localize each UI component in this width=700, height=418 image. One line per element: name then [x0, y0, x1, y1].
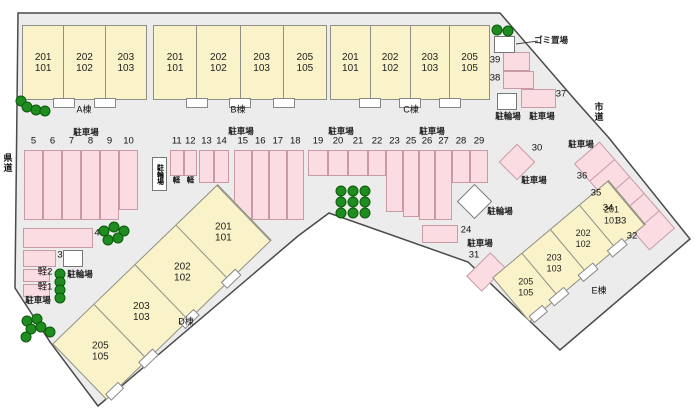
- unit-number: 205105: [461, 52, 478, 74]
- building-b: 201101202102203103205105: [153, 25, 327, 100]
- unit-number: 201101: [342, 52, 359, 74]
- unit-number: 205105: [518, 276, 533, 298]
- stall-number: 37: [556, 89, 567, 99]
- parking-stall: [328, 150, 348, 176]
- unit-number: 203103: [422, 52, 439, 74]
- parking-area-label: 駐車場: [73, 128, 99, 137]
- bicycle-parking-box: [497, 93, 517, 110]
- parking-stall: [100, 150, 119, 220]
- parking-area-label: 駐車場: [228, 127, 254, 136]
- parking-stall: [368, 150, 386, 176]
- stall-number: 軽1: [38, 282, 53, 292]
- tree-icon: [336, 208, 347, 219]
- road-label-shido: 市道: [594, 102, 603, 122]
- stall-number: 28: [456, 136, 467, 146]
- stall-number: 14: [216, 136, 227, 146]
- stall-number: 10: [123, 136, 134, 146]
- building-c: 201101202102203103205105: [330, 25, 490, 100]
- unit-number: 203103: [117, 52, 134, 74]
- unit-number: 202102: [210, 52, 227, 74]
- unit-number-line: 102: [76, 63, 93, 74]
- unit-number: 202102: [174, 262, 191, 284]
- tree-icon: [348, 208, 359, 219]
- stall-number: 25: [406, 136, 417, 146]
- unit-number-line: 202: [76, 52, 93, 63]
- parking-stall: [199, 150, 214, 183]
- unit-number: 201101: [35, 52, 52, 74]
- unit-cell: 202102: [64, 26, 105, 99]
- unit-cell: 202102: [371, 26, 411, 99]
- site-plan: 県道 市道 ゴミ置場 A棟 B棟 C棟 D棟 E棟 20110120210220…: [0, 0, 700, 418]
- unit-number-line: 203: [253, 52, 270, 63]
- tree-icon: [360, 186, 371, 197]
- stall-number: 13: [201, 136, 212, 146]
- stall-number: 4: [94, 228, 99, 238]
- unit-number-line: 203: [133, 301, 150, 312]
- kei-stall-label: 軽: [187, 176, 195, 184]
- unit-number-line: 202: [210, 52, 227, 63]
- unit-number: 202102: [382, 52, 399, 74]
- stall-number: 19: [313, 136, 324, 146]
- parking-stall: [521, 89, 556, 108]
- entrance-porch: [273, 98, 295, 108]
- tree-icon: [336, 186, 347, 197]
- stall-number: 24: [461, 225, 472, 235]
- parking-stall: [422, 225, 458, 243]
- unit-number-line: 103: [422, 63, 439, 74]
- stall-number: 5: [31, 136, 36, 146]
- parking-stall: [470, 150, 488, 183]
- parking-stall: [403, 150, 419, 217]
- stall-number: 36: [577, 171, 588, 181]
- stall-number: 32: [627, 231, 638, 241]
- stall-number: 39: [490, 55, 501, 65]
- stall-number: 38: [490, 73, 501, 83]
- parking-stall: [308, 150, 328, 176]
- tree-icon: [21, 332, 32, 343]
- tree-icon: [348, 197, 359, 208]
- unit-number: 203103: [547, 252, 562, 274]
- parking-stall: [184, 150, 198, 176]
- parking-stall: [43, 150, 62, 220]
- unit-number-line: 201: [167, 52, 184, 63]
- unit-number: 205105: [92, 341, 109, 363]
- parking-stall: [419, 150, 435, 220]
- unit-number-line: 105: [297, 63, 314, 74]
- unit-number-line: 202: [382, 52, 399, 63]
- parking-stall: [503, 52, 530, 71]
- tree-icon: [360, 197, 371, 208]
- parking-stall: [435, 150, 452, 220]
- unit-cell: 203103: [106, 26, 146, 99]
- parking-stall: [23, 228, 93, 248]
- unit-number-line: 105: [461, 63, 478, 74]
- unit-number-line: 202: [575, 228, 590, 239]
- parking-stall: [81, 150, 100, 220]
- kei-stall-label: 軽: [173, 176, 181, 184]
- unit-cell: 201101: [154, 26, 197, 99]
- unit-number: 201101: [215, 222, 232, 244]
- unit-cell: 201101: [23, 26, 64, 99]
- unit-number-line: 101: [342, 63, 359, 74]
- tree-icon: [336, 197, 347, 208]
- unit-number-line: 103: [253, 63, 270, 74]
- parking-stall: [269, 150, 287, 220]
- stall-number: 8: [88, 136, 93, 146]
- tree-icon: [55, 293, 66, 304]
- stall-number: 29: [474, 136, 485, 146]
- unit-number-line: 103: [133, 312, 150, 323]
- unit-number-line: 203: [547, 252, 562, 263]
- unit-number-line: 101: [215, 233, 232, 244]
- tree-icon: [503, 26, 514, 37]
- stall-number: 11: [172, 136, 182, 146]
- stall-number: 27: [438, 136, 449, 146]
- unit-number-line: 103: [117, 63, 134, 74]
- unit-number-line: 205: [461, 52, 478, 63]
- stall-number: 3: [57, 250, 62, 260]
- stall-number: 34: [603, 203, 614, 213]
- stall-number: 21: [353, 136, 364, 146]
- entrance-porch: [94, 98, 116, 108]
- unit-number-line: 205: [297, 52, 314, 63]
- unit-number-line: 102: [174, 273, 191, 284]
- stall-number: 軽2: [38, 267, 53, 277]
- parking-stall: [62, 150, 81, 220]
- stall-number: 7: [69, 136, 74, 146]
- unit-number-line: 201: [342, 52, 359, 63]
- unit-number-line: 105: [92, 352, 109, 363]
- stall-number: 35: [591, 188, 602, 198]
- unit-number-line: 103: [547, 263, 562, 274]
- stall-number: 33: [616, 216, 627, 226]
- parking-area-label: 駐車場: [521, 176, 547, 185]
- stall-number: 9: [107, 136, 112, 146]
- unit-number-line: 203: [117, 52, 134, 63]
- unit-number: 201101: [167, 52, 184, 74]
- unit-cell: 205105: [450, 26, 489, 99]
- stall-number: 17: [272, 136, 283, 146]
- stall-number: 12: [185, 136, 196, 146]
- stall-number: 22: [372, 136, 383, 146]
- stall-number: 30: [532, 143, 543, 153]
- parking-stall: [503, 71, 534, 89]
- entrance-porch: [53, 98, 75, 108]
- garbage-area-label: ゴミ置場: [534, 36, 568, 45]
- entrance-porch: [186, 98, 208, 108]
- stall-number: 6: [50, 136, 55, 146]
- bicycle-area-label: 駐輪場: [487, 207, 513, 216]
- unit-number-line: 201: [35, 52, 52, 63]
- parking-stall: [24, 150, 43, 220]
- unit-cell: 202102: [197, 26, 240, 99]
- stall-number: 26: [422, 136, 433, 146]
- unit-number-line: 101: [35, 63, 52, 74]
- parking-area-label: 駐車場: [568, 140, 594, 149]
- parking-stall: [452, 150, 470, 183]
- bicycle-area-label: 駐輪場: [495, 112, 521, 121]
- bicycle-area-label: 駐輪場: [67, 270, 93, 279]
- road-label-kendo: 県道: [3, 153, 12, 173]
- parking-stall: [386, 150, 403, 212]
- building-e-label: E棟: [591, 287, 606, 296]
- building-a: 201101202102203103: [22, 25, 147, 100]
- unit-number-line: 101: [167, 63, 184, 74]
- stall-number: 18: [290, 136, 301, 146]
- unit-cell: 205105: [284, 26, 326, 99]
- stall-number: 16: [255, 136, 266, 146]
- unit-number: 202102: [575, 228, 590, 250]
- tree-icon: [492, 25, 503, 36]
- unit-number-line: 203: [422, 52, 439, 63]
- unit-cell: 203103: [241, 26, 284, 99]
- parking-area-label: 駐車場: [419, 127, 445, 136]
- parking-area-label: 駐車場: [467, 239, 493, 248]
- unit-number-line: 205: [92, 341, 109, 352]
- unit-number-line: 102: [382, 63, 399, 74]
- building-d-label: D棟: [178, 318, 194, 327]
- unit-number: 203103: [253, 52, 270, 74]
- parking-area-label: 駐車場: [529, 112, 555, 121]
- parking-stall: [170, 150, 184, 176]
- bicycle-parking-box: 駐輪場: [152, 157, 167, 191]
- building-a-label: A棟: [76, 106, 91, 115]
- unit-number: 205105: [297, 52, 314, 74]
- unit-number-line: 205: [518, 276, 533, 287]
- parking-stall: [252, 150, 270, 220]
- building-c-label: C棟: [403, 106, 419, 115]
- tree-icon: [40, 106, 51, 117]
- stall-number: 23: [389, 136, 400, 146]
- parking-area-label: 駐車場: [25, 296, 51, 305]
- utility-box: [63, 250, 83, 267]
- unit-cell: 201101: [331, 26, 371, 99]
- unit-number-line: 201: [215, 222, 232, 233]
- garbage-box: [494, 36, 515, 53]
- unit-number-line: 202: [174, 262, 191, 273]
- stall-number: 31: [469, 250, 480, 260]
- tree-icon: [348, 186, 359, 197]
- tree-icon: [360, 208, 371, 219]
- unit-number: 202102: [76, 52, 93, 74]
- parking-stall: [287, 150, 305, 220]
- tree-icon: [45, 327, 56, 338]
- stall-number: 20: [333, 136, 344, 146]
- parking-stall: [119, 150, 138, 210]
- building-b-label: B棟: [230, 106, 245, 115]
- unit-number-line: 102: [575, 239, 590, 250]
- unit-cell: 203103: [411, 26, 451, 99]
- stall-number: 15: [237, 136, 248, 146]
- tree-icon: [113, 233, 124, 244]
- unit-number-line: 105: [518, 287, 533, 298]
- unit-number-line: 102: [210, 63, 227, 74]
- parking-stall: [23, 250, 56, 267]
- bicycle-parking-label: 駐輪場: [155, 164, 165, 185]
- entrance-porch: [359, 98, 381, 108]
- unit-number: 203103: [133, 301, 150, 323]
- parking-stall: [348, 150, 368, 176]
- parking-stall: [214, 150, 229, 183]
- entrance-porch: [439, 98, 461, 108]
- parking-area-label: 駐車場: [328, 127, 354, 136]
